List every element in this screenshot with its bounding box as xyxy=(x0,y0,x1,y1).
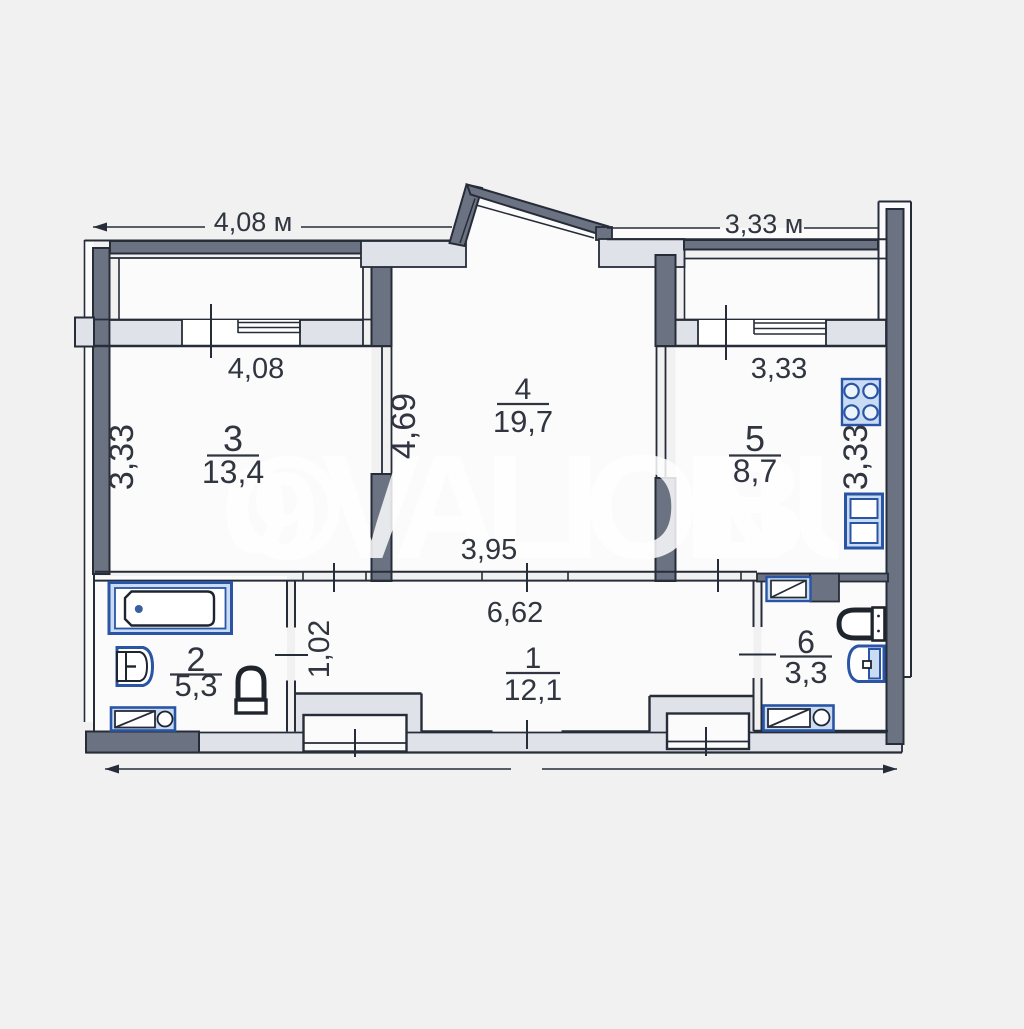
svg-text:1: 1 xyxy=(525,642,542,675)
svg-text:12,1: 12,1 xyxy=(504,674,562,707)
svg-text:3: 3 xyxy=(223,418,243,459)
svg-text:3,95: 3,95 xyxy=(461,534,517,566)
svg-text:3,3: 3,3 xyxy=(784,655,827,690)
svg-text:4,08: 4,08 xyxy=(228,353,284,385)
svg-text:3,33: 3,33 xyxy=(837,424,875,490)
svg-text:4: 4 xyxy=(515,373,532,406)
svg-text:13,4: 13,4 xyxy=(202,454,264,490)
svg-text:3,33 м: 3,33 м xyxy=(725,209,804,239)
svg-text:19,7: 19,7 xyxy=(493,404,553,439)
svg-text:3,33: 3,33 xyxy=(751,353,807,385)
svg-text:4,69: 4,69 xyxy=(385,393,423,459)
svg-text:3,33: 3,33 xyxy=(103,424,141,490)
svg-text:8,7: 8,7 xyxy=(733,453,777,489)
svg-text:1,02: 1,02 xyxy=(303,620,336,678)
svg-text:5,3: 5,3 xyxy=(174,668,217,703)
svg-text:6,62: 6,62 xyxy=(487,597,543,629)
svg-text:4,08 м: 4,08 м xyxy=(214,207,293,237)
